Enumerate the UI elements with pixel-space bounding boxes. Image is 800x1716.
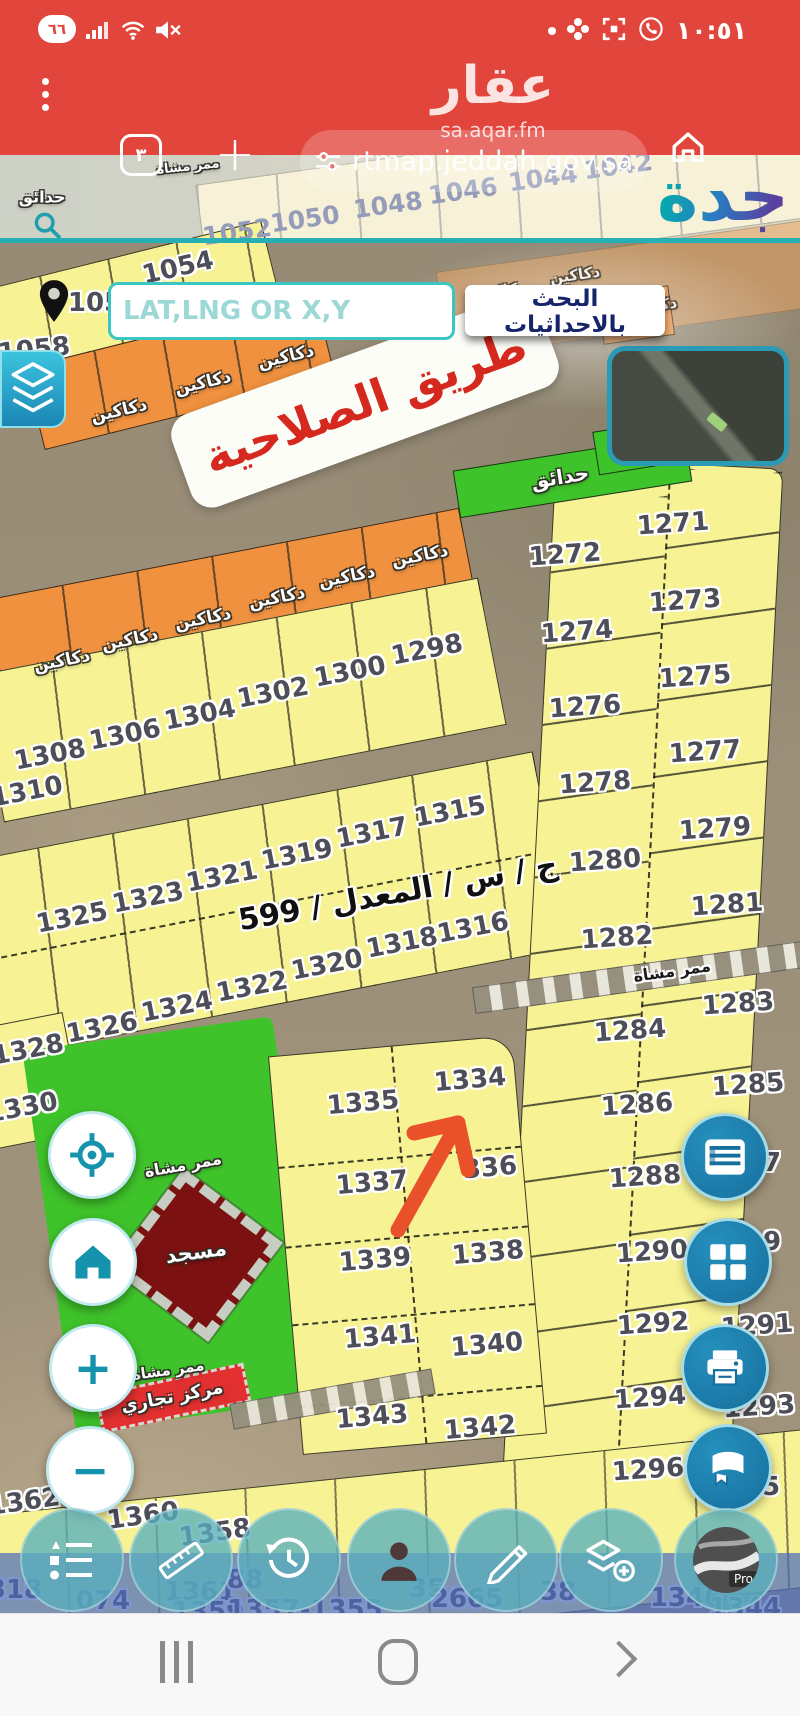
earth-pro-button[interactable]: Pro	[674, 1508, 778, 1612]
home-map-button[interactable]	[49, 1218, 137, 1306]
coordinate-search-button[interactable]: البحث بالاحداثيات	[465, 285, 665, 336]
recents-button[interactable]	[160, 1641, 193, 1683]
home-icon[interactable]	[668, 128, 708, 168]
pro-badge: Pro	[729, 1571, 758, 1587]
whatsapp-icon	[638, 16, 664, 42]
menu-icon[interactable]	[42, 75, 50, 121]
table-icon	[703, 1137, 747, 1177]
back-button[interactable]	[601, 1641, 638, 1678]
location-pin-icon	[36, 278, 72, 324]
screenshot-icon	[602, 17, 626, 41]
bookmark-button[interactable]	[684, 1424, 772, 1512]
signal-icon	[86, 21, 110, 39]
person-icon	[377, 1538, 421, 1582]
minus-icon: −	[71, 1447, 110, 1493]
android-nav-bar	[0, 1613, 800, 1716]
battery-indicator: ٦٦	[38, 15, 76, 43]
url-bar[interactable]: rtmap.jeddah.gov.sa	[300, 130, 648, 192]
layers-button[interactable]	[0, 350, 66, 428]
new-tab-button[interactable]: +	[205, 124, 265, 184]
recording-dot-icon	[548, 27, 556, 35]
print-button[interactable]	[681, 1324, 769, 1412]
legend-icon	[48, 1539, 96, 1581]
wifi-icon	[120, 19, 146, 41]
zoom-in-button[interactable]: +	[49, 1324, 137, 1412]
legend-button[interactable]	[20, 1508, 124, 1612]
pencil-icon	[482, 1536, 530, 1584]
browser-toolbar: ٣ + rtmap.jeddah.gov.sa	[0, 58, 800, 155]
add-layers-button[interactable]	[559, 1508, 663, 1612]
annotation-arrow	[380, 1095, 490, 1240]
printer-icon	[703, 1348, 747, 1388]
battery-level: ٦٦	[48, 20, 66, 38]
satellite-preview[interactable]	[607, 346, 789, 466]
layers-icon	[8, 359, 58, 419]
book-icon	[707, 1449, 749, 1487]
draw-button[interactable]	[454, 1508, 558, 1612]
history-button[interactable]	[237, 1508, 341, 1612]
locate-icon	[68, 1131, 116, 1179]
ruler-icon	[155, 1534, 207, 1586]
history-icon	[264, 1535, 314, 1585]
mute-icon	[154, 19, 182, 41]
satellite-vehicle	[706, 412, 728, 433]
home-nav-button[interactable]	[378, 1639, 418, 1685]
status-bar: ٦٦ ١٠:٥١	[0, 0, 800, 58]
grid-button[interactable]	[684, 1218, 772, 1306]
tabs-button[interactable]: ٣	[120, 134, 162, 176]
phone-screen: ٦٦ ١٠:٥١ ٣ + rtmap.jeddah.gov.sa عقار sa…	[0, 0, 800, 1716]
parcel-table-button[interactable]	[681, 1113, 769, 1201]
tune-icon	[314, 149, 342, 173]
clock: ١٠:٥١	[676, 16, 747, 45]
fan-icon	[566, 17, 590, 41]
plus-icon: +	[74, 1345, 113, 1391]
grid-icon	[708, 1242, 748, 1282]
coordinate-search-input[interactable]	[108, 282, 455, 340]
user-button[interactable]	[347, 1508, 451, 1612]
earth-globe-icon: Pro	[693, 1527, 759, 1593]
url-text: rtmap.jeddah.gov.sa	[352, 146, 633, 177]
layers-plus-icon	[586, 1537, 636, 1583]
search-icon[interactable]	[32, 210, 64, 242]
tab-count: ٣	[136, 145, 147, 166]
locate-button[interactable]	[48, 1111, 136, 1199]
zoom-out-button[interactable]: −	[46, 1426, 134, 1514]
measure-button[interactable]	[129, 1508, 233, 1612]
home-map-icon	[71, 1241, 115, 1283]
